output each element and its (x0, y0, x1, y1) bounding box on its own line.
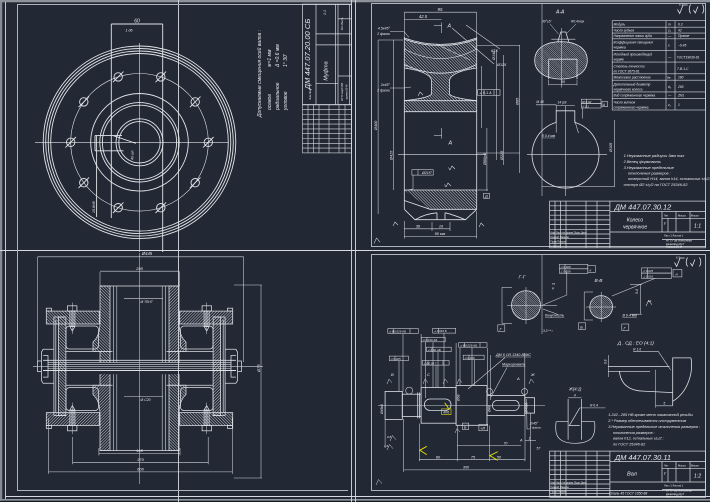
svg-text:14: 14 (648, 299, 652, 303)
svg-text:М 4б: М 4б (536, 100, 543, 104)
svg-text:по ГОСТ 3675-81: по ГОСТ 3675-81 (614, 69, 640, 73)
svg-text:180: 180 (678, 75, 684, 79)
svg-text:Ø 0.02: Ø 0.02 (581, 100, 591, 104)
svg-text:червячное: червячное (623, 225, 647, 231)
svg-text:1: 1 (678, 103, 680, 107)
svg-text:Направление линии зуба: Направление линии зуба (614, 34, 652, 38)
svg-text:3.Неуказанные предельные: 3.Неуказанные предельные (624, 165, 675, 170)
svg-text:42.5: 42.5 (419, 14, 428, 19)
svg-text:Правое: Правое (678, 34, 690, 38)
svg-text:0.8: 0.8 (604, 359, 608, 364)
svg-text:Ø21f7: Ø21f7 (421, 171, 433, 175)
svg-text:5.4: 5.4 (635, 289, 639, 294)
svg-text:Делительный диаметр: Делительный диаметр (613, 83, 651, 87)
svg-text:70: 70 (504, 441, 508, 445)
svg-text:Ø125: Ø125 (496, 63, 507, 67)
svg-text:Ø225: Ø225 (500, 150, 504, 161)
svg-text:Д: Д (484, 195, 488, 199)
svg-text:Разраб Иванов: Разраб Иванов (551, 485, 570, 489)
svg-text:Коэффициент смещения: Коэффициент смещения (614, 41, 654, 45)
svg-text:300: 300 (463, 466, 470, 470)
svg-text:В 0.4 мм: В 0.4 мм (623, 314, 638, 318)
svg-text:ж=1 мм: ж=1 мм (267, 49, 273, 68)
svg-text:Ø415: Ø415 (390, 150, 394, 161)
svg-text:А: А (447, 24, 452, 30)
svg-text:6.3: 6.3 (678, 22, 683, 26)
svg-text:⊥ 0.1 А: ⊥ 0.1 А (479, 91, 492, 95)
svg-text:⟂ 0.016: ⟂ 0.016 (643, 274, 653, 278)
svg-text:Ø С20: Ø С20 (140, 398, 151, 402)
svg-text:Лист 1 Листов 1: Лист 1 Листов 1 (664, 484, 684, 488)
svg-text:4: 4 (574, 393, 576, 397)
svg-text:Вид сопряженного червяка: Вид сопряженного червяка (614, 94, 656, 98)
svg-text:R 0.4: R 0.4 (590, 403, 598, 407)
svg-text:ДМ 447.07.30.11: ДМ 447.07.30.11 (614, 453, 671, 462)
svg-text:ГОСТ19036-81: ГОСТ19036-81 (677, 55, 700, 59)
svg-text:Ж: Ж (530, 372, 535, 377)
svg-text:Г-Г: Г-Г (519, 275, 526, 281)
svg-text:Ø58: Ø58 (456, 394, 460, 402)
svg-text:А: А (519, 439, 523, 443)
svg-text:Маркировать: Маркировать (502, 363, 526, 367)
svg-text:⌭ 0.020: ⌭ 0.020 (561, 265, 572, 269)
svg-text:Изм Лист № докум Подп Дата: Изм Лист № докум Подп Дата (551, 480, 587, 484)
svg-text:Б: Б (580, 324, 583, 329)
svg-text:Масса: Масса (678, 464, 686, 468)
svg-text:⌭ Ø0.029 АБ: ⌭ Ø0.029 АБ (460, 344, 477, 348)
svg-text:Ø45к6: Ø45к6 (380, 404, 384, 415)
svg-text:1 d6: 1 d6 (126, 29, 133, 33)
svg-text:1:1: 1:1 (323, 10, 327, 15)
svg-text:Ø400: Ø400 (374, 120, 378, 131)
svg-text:Ø75: Ø75 (256, 364, 261, 373)
svg-text:Исходный производящий: Исходный производящий (614, 53, 653, 57)
svg-text:Число зубьев: Число зубьев (614, 28, 635, 32)
svg-text:Ø85: Ø85 (515, 97, 519, 106)
svg-text:Число витков: Число витков (614, 101, 636, 105)
svg-text:Масса: Масса (678, 214, 686, 218)
svg-text:0.8: 0.8 (387, 435, 392, 439)
svg-text:Конусность: Конусность (545, 314, 564, 318)
svg-text:15.8H9: 15.8H9 (92, 201, 96, 213)
svg-text:60: 60 (134, 19, 140, 25)
svg-text:14 js9: 14 js9 (558, 100, 567, 104)
svg-text:Ø45к6: Ø45к6 (525, 402, 529, 413)
svg-text:ZN1: ZN1 (677, 94, 684, 98)
svg-text:265: 265 (677, 85, 684, 89)
svg-text:⟂ 0.016: ⟂ 0.016 (561, 270, 571, 274)
svg-text:R 1.6: R 1.6 (633, 347, 641, 351)
svg-text:⌭ 0.019 АБ: ⌭ 0.019 АБ (423, 338, 438, 342)
svg-text:80 мм: 80 мм (435, 232, 446, 236)
svg-text:Группа 05-М: Группа 05-М (666, 495, 683, 499)
svg-text:370: 370 (137, 457, 144, 462)
svg-text:1° 30': 1° 30' (283, 53, 289, 67)
svg-text:z₁: z₁ (667, 103, 671, 107)
svg-text:отклонения размеров :: отклонения размеров : (613, 431, 655, 435)
svg-text:1:1: 1:1 (694, 224, 701, 230)
svg-text:—: — (667, 55, 672, 59)
svg-text:⌭ 0.016: ⌭ 0.016 (465, 356, 476, 360)
svg-text:⌭ 0.025: ⌭ 0.025 (391, 357, 402, 361)
svg-text:Модуль: Модуль (614, 22, 626, 26)
svg-text:⌭ Ø0.029 АБ: ⌭ Ø0.029 АБ (389, 330, 406, 334)
svg-text:группа 05-М: группа 05-М (345, 85, 349, 100)
svg-text:Пров Петров: Пров Петров (551, 240, 567, 244)
svg-text:Ø80js6: Ø80js6 (483, 152, 487, 166)
svg-text:4П6: 4П6 (443, 410, 449, 414)
svg-text:Δ =0.6 мм: Δ =0.6 мм (275, 44, 281, 68)
svg-text:6.3: 6.3 (679, 3, 683, 7)
svg-text:1.6: 1.6 (384, 444, 389, 448)
svg-text:Ø 70Н7: Ø 70Н7 (140, 300, 154, 304)
svg-text:В: В (391, 372, 394, 377)
svg-text:Вал: Вал (627, 472, 638, 478)
svg-text:А-А: А-А (555, 10, 565, 16)
svg-text:Изм Лист: Изм Лист (308, 88, 312, 100)
svg-text:600: 600 (137, 467, 144, 472)
svg-text:3.3⁺⁰·²: 3.3⁺⁰·² (543, 329, 553, 333)
svg-text:у: у (663, 221, 666, 225)
svg-text:1.Неуказанные радиусы 3мм max: 1.Неуказанные радиусы 3мм max (624, 153, 686, 158)
svg-text:95: 95 (438, 7, 443, 12)
svg-text:А: А (602, 103, 605, 107)
svg-text:Масшт: Масшт (691, 214, 700, 218)
svg-text:осевое: осевое (267, 94, 273, 110)
svg-text:R: R (552, 287, 554, 291)
svg-text:Лист 1 Листов 1: Лист 1 Листов 1 (664, 234, 684, 238)
svg-text:⟂ 0.02 АБ: ⟂ 0.02 АБ (428, 348, 441, 352)
svg-text:3.Неуказанные предельные откло: 3.Неуказанные предельные отклонения разм… (608, 425, 700, 429)
svg-text:40 шл: 40 шл (131, 150, 135, 160)
svg-text:Муфта: Муфта (324, 61, 330, 80)
svg-text:// 0.1: // 0.1 (581, 104, 589, 108)
svg-text:42: 42 (678, 28, 682, 32)
svg-text:К: К (590, 268, 592, 272)
svg-text:угловое: угловое (283, 91, 289, 111)
svg-text:165: 165 (136, 448, 143, 453)
svg-text:у: у (663, 471, 666, 475)
svg-text:m: m (668, 22, 671, 26)
svg-text:aw: aw (667, 75, 671, 79)
svg-text:Ø105: Ø105 (609, 142, 613, 153)
svg-text:по ГОСТ 25346-82: по ГОСТ 25346-82 (613, 442, 646, 446)
svg-text:Ø48: Ø48 (488, 405, 492, 413)
svg-text:1: 1 (529, 436, 531, 440)
svg-text:1:2: 1:2 (694, 474, 701, 480)
svg-text:7-В-1-С: 7-В-1-С (677, 67, 689, 71)
svg-text:2 фаски: 2 фаски (529, 426, 542, 430)
svg-text:4.5х45°: 4.5х45° (378, 27, 391, 31)
svg-text:Н контр: Н контр (551, 494, 561, 498)
svg-text:отклонения размеров :: отклонения размеров : (628, 171, 671, 176)
svg-text:2.Венец формовать: 2.Венец формовать (623, 159, 661, 164)
svg-text:Сталь 45 ГОСТ 1050-88: Сталь 45 ГОСТ 1050-88 (609, 492, 648, 496)
svg-text:чЛ: чЛ (481, 427, 486, 431)
svg-text:ДМ 447.07.30.12: ДМ 447.07.30.12 (614, 203, 672, 212)
svg-text:Допускаемые смещения осей вало: Допускаемые смещения осей валов : (256, 29, 263, 118)
svg-text:Межосевое расстояние: Межосевое расстояние (614, 75, 651, 79)
svg-text:—: — (667, 34, 672, 38)
svg-text:Н контр: Н контр (551, 244, 561, 248)
svg-text:⟂ Ø0.05 Г: ⟂ Ø0.05 Г (424, 362, 437, 366)
svg-text:6ТХ: 6ТХ (491, 49, 498, 53)
svg-text:—: — (667, 94, 672, 98)
svg-text:Г5: Г5 (552, 282, 556, 286)
svg-text:червячного колеса: червячного колеса (614, 88, 643, 92)
svg-text:Д . СД : ЕО (4:1): Д . СД : ЕО (4:1) (617, 340, 655, 346)
svg-text:2х45°: 2х45° (380, 83, 391, 87)
svg-text:валов h12, остальных ±t₂/2 :: валов h12, остальных ±t₂/2 : (613, 437, 664, 441)
svg-text:2 фаски: 2 фаски (376, 89, 390, 93)
svg-text:Пров Петров: Пров Петров (551, 490, 567, 494)
svg-text:x: x (667, 44, 670, 48)
svg-text:55: 55 (561, 80, 565, 84)
svg-text:Ж(4:1): Ж(4:1) (568, 386, 582, 391)
svg-text:Масшт: Масшт (691, 464, 700, 468)
svg-text:отступ Ø2 ±t₂/2 на ГОСТ 25346-: отступ Ø2 ±t₂/2 на ГОСТ 25346-82 (624, 182, 689, 187)
svg-text:Лит Масса: Лит Масса (340, 17, 344, 30)
svg-text:б 0.4 мм: б 0.4 мм (542, 134, 556, 138)
svg-text:радиальное: радиальное (275, 82, 281, 111)
svg-text:А: А (516, 376, 520, 381)
svg-text:ДМ 6 ОЛ.1340-80ИС: ДМ 6 ОЛ.1340-80ИС (495, 353, 531, 357)
svg-text:А: А (448, 141, 453, 147)
svg-text:2.* Размер обеспечивается инст: 2.* Размер обеспечивается инструментом (607, 419, 686, 423)
svg-text:В-В: В-В (595, 278, 604, 284)
svg-text:Группа 05-М: Группа 05-М (666, 245, 683, 249)
svg-text:2 фаски: 2 фаски (376, 32, 390, 36)
svg-text:отверстий Н14, валов h14, оста: отверстий Н14, валов h14, остальных ±t₂/… (628, 176, 710, 181)
svg-text:57: 57 (537, 447, 541, 451)
svg-text:30°±5': 30°±5' (542, 20, 552, 24)
svg-text:сопряженного червяка: сопряженного червяка (614, 106, 649, 110)
svg-text:⌭ 0.025: ⌭ 0.025 (643, 269, 654, 273)
svg-text:Ø445: Ø445 (141, 251, 153, 256)
svg-text:295: 295 (135, 266, 143, 271)
svg-text:R0.4max: R0.4max (571, 20, 585, 24)
svg-text:1.242...285 НВ кроме мест нака: 1.242...285 НВ кроме мест накатанной рез… (608, 413, 693, 417)
svg-text:С: С (427, 372, 430, 377)
svg-text:6.3: 6.3 (676, 256, 680, 260)
svg-text:Колесо: Колесо (627, 218, 644, 224)
svg-text:Степень точности: Степень точности (614, 64, 645, 68)
svg-text:ДМ 447.07.20.00 СБ: ДМ 447.07.20.00 СБ (303, 19, 312, 91)
svg-text:червяк: червяк (614, 58, 625, 62)
svg-text:⟂ 0.016 Б: ⟂ 0.016 Б (434, 329, 447, 333)
svg-text:червяка: червяка (614, 46, 626, 50)
svg-text:5: 5 (663, 401, 665, 405)
svg-text:НГТУ кафТММ: НГТУ кафТММ (340, 83, 344, 101)
svg-text:−0.45: −0.45 (678, 44, 687, 48)
svg-text:Разраб Иванов: Разраб Иванов (551, 235, 570, 239)
svg-text:Изм Лист № докум Подп Дата: Изм Лист № докум Подп Дата (551, 230, 587, 234)
